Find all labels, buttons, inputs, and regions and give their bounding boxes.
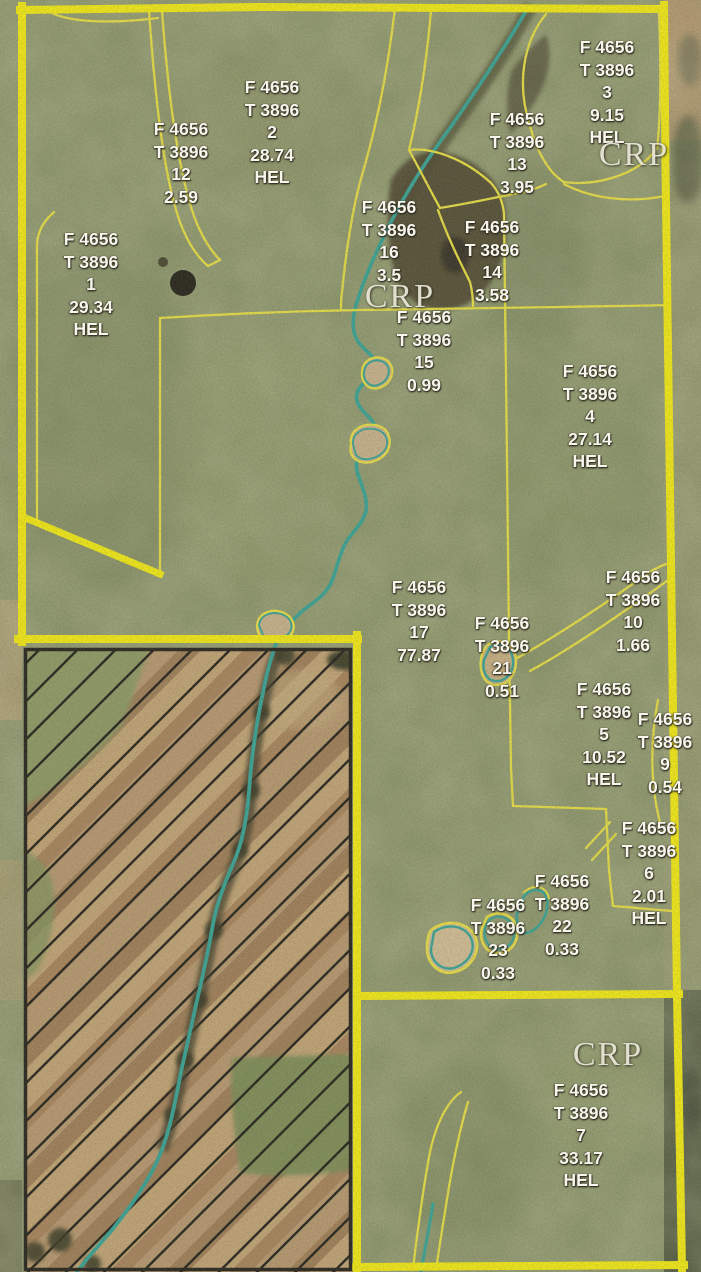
map-graphics: [0, 0, 701, 1272]
tract-boundary-top: [20, 7, 664, 10]
inset-hatched-area: [24, 645, 363, 1272]
farm-tract-aerial-map: F 4656T 3896122.59F 4656T 3896228.74HELF…: [0, 0, 701, 1272]
inset-hatch-overlay: [24, 648, 352, 1272]
pond-dark-field1: [170, 270, 196, 296]
tract-boundary-parcel-divider: [357, 994, 679, 996]
tract-boundary-bottom: [353, 1265, 684, 1267]
pond-2: [350, 425, 389, 463]
pond-field21: [481, 641, 517, 685]
